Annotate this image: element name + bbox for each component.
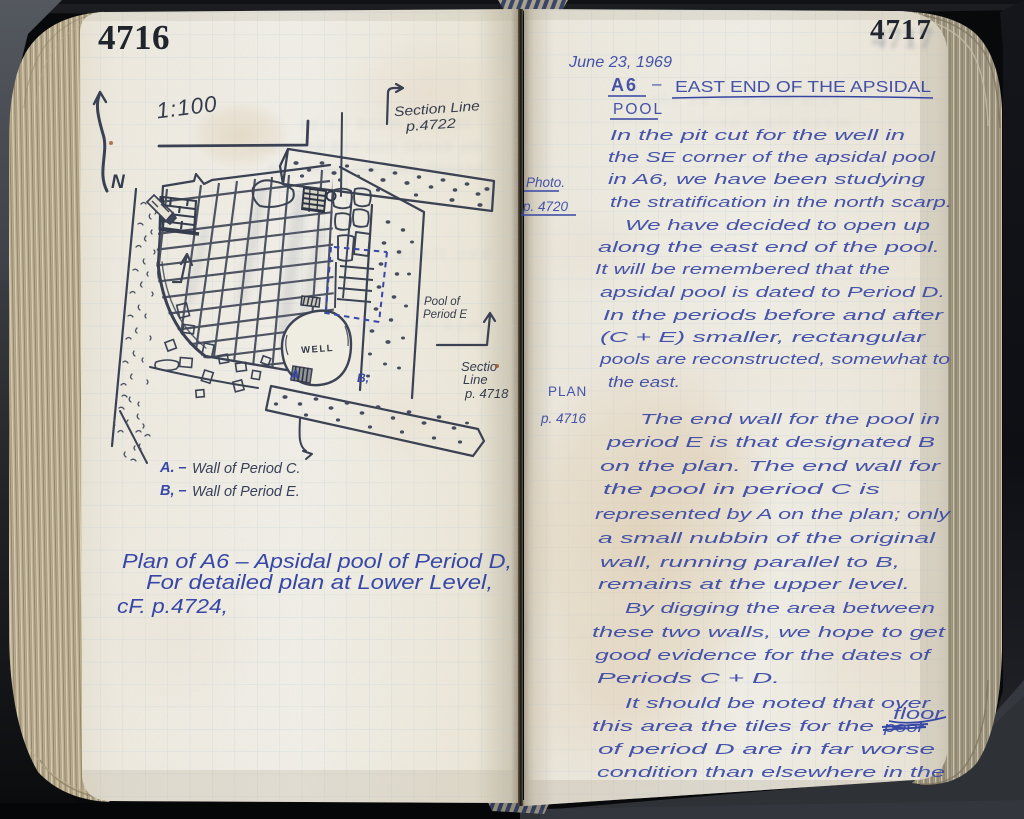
- svg-text:Line: Line: [463, 372, 488, 387]
- svg-text:B, –: B, –: [160, 483, 187, 499]
- svg-text:apsidal pool is dated to Perio: apsidal pool is dated to Period D.: [600, 284, 945, 301]
- svg-text:the pool in period C is: the pool in period C is: [603, 481, 881, 498]
- svg-text:p. 4718: p. 4718: [464, 386, 509, 401]
- svg-text:remains at the upper level.: remains at the upper level.: [598, 576, 910, 593]
- svg-text:Period E: Period E: [423, 309, 467, 321]
- svg-text:For detailed plan at Lower Lev: For detailed plan at Lower Level,: [146, 572, 493, 594]
- svg-text:pools are reconstructed, somew: pools are reconstructed, somewhat to: [599, 351, 950, 368]
- svg-text:along the east end of the pool: along the east end of the pool.: [598, 239, 940, 256]
- svg-text:Pool of: Pool of: [424, 296, 462, 308]
- svg-text:–: –: [652, 74, 662, 93]
- svg-text:in A6, we have been studying: in A6, we have been studying: [608, 171, 926, 188]
- svg-text:N: N: [111, 172, 126, 193]
- svg-text:a small nubbin of the original: a small nubbin of the original: [598, 530, 936, 547]
- svg-text:A. –: A. –: [159, 460, 187, 476]
- svg-text:noes sed bnn onli tiensk oft: noes sed bnn onli tiensk oft: [250, 139, 481, 156]
- svg-text:It will be remembered that the: It will be remembered that the: [595, 261, 890, 278]
- svg-text:p. 4720: p. 4720: [522, 199, 569, 214]
- svg-text:wselt nae: wselt nae: [395, 245, 490, 262]
- svg-text:(C + E) smaller, rectangular: (C + E) smaller, rectangular: [600, 329, 927, 346]
- svg-text:POOL: POOL: [613, 101, 664, 118]
- svg-text:A6: A6: [611, 75, 638, 95]
- svg-text:WELL: WELL: [301, 343, 335, 356]
- svg-text:Periods C + D.: Periods C + D.: [597, 670, 780, 687]
- svg-text:the stratification in the nort: the stratification in the north scarp.: [610, 194, 952, 211]
- svg-text:p. 4716: p. 4716: [540, 411, 587, 426]
- svg-text:A: A: [289, 367, 299, 382]
- svg-text:The end wall for the pool in: The end wall for the pool in: [640, 411, 940, 428]
- svg-text:We have decided to open up: We have decided to open up: [625, 217, 930, 234]
- svg-text:In the pit cut for the well in: In the pit cut for the well in: [610, 127, 905, 144]
- svg-text:By digging the area between: By digging the area between: [625, 600, 935, 617]
- svg-text:represented by A on the plan;: represented by A on the plan; only: [595, 506, 952, 523]
- svg-text:period E is that designated B: period E is that designated B: [605, 434, 935, 451]
- svg-text:Wall of Period E.: Wall of Period E.: [192, 484, 300, 500]
- svg-text:EAST END OF THE APSIDAL: EAST END OF THE APSIDAL: [675, 79, 931, 96]
- svg-text:the east.: the east.: [608, 374, 680, 391]
- svg-text:In the periods before and afte: In the periods before and after: [603, 307, 945, 324]
- svg-text:B,: B,: [357, 371, 369, 385]
- svg-text:condition than elsewhere in th: condition than elsewhere in the: [597, 764, 945, 781]
- svg-text:the SE corner of the apsidal p: the SE corner of the apsidal pool: [608, 149, 936, 166]
- svg-text:Photo.: Photo.: [526, 175, 565, 190]
- svg-text:4716: 4716: [98, 18, 170, 57]
- svg-text:floor: floor: [893, 704, 945, 723]
- svg-text:of period D are in far worse: of period D are in far worse: [598, 741, 935, 758]
- svg-text:these two walls, we hope to ge: these two walls, we hope to get: [592, 624, 946, 641]
- svg-text:this area the tiles for the: this area the tiles for the: [592, 718, 874, 735]
- svg-text:It should be noted that over: It should be noted that over: [625, 695, 932, 712]
- svg-text:wall, running parallel to B,: wall, running parallel to B,: [600, 554, 900, 571]
- svg-text:on the plan. The end wall for: on the plan. The end wall for: [600, 458, 942, 475]
- svg-text:cF. p.4724,: cF. p.4724,: [117, 596, 228, 618]
- svg-text:Plan of A6 – Apsidal pool of: Plan of A6 – Apsidal pool of Period D,: [122, 551, 512, 573]
- svg-text:PLAN: PLAN: [548, 384, 587, 399]
- svg-text:Wall of Period C.: Wall of Period C.: [192, 461, 301, 477]
- svg-text:4717: 4717: [872, 23, 934, 55]
- svg-text:June 23, 1969: June 23, 1969: [568, 54, 672, 71]
- svg-text:good evidence for the dates of: good evidence for the dates of: [595, 647, 933, 664]
